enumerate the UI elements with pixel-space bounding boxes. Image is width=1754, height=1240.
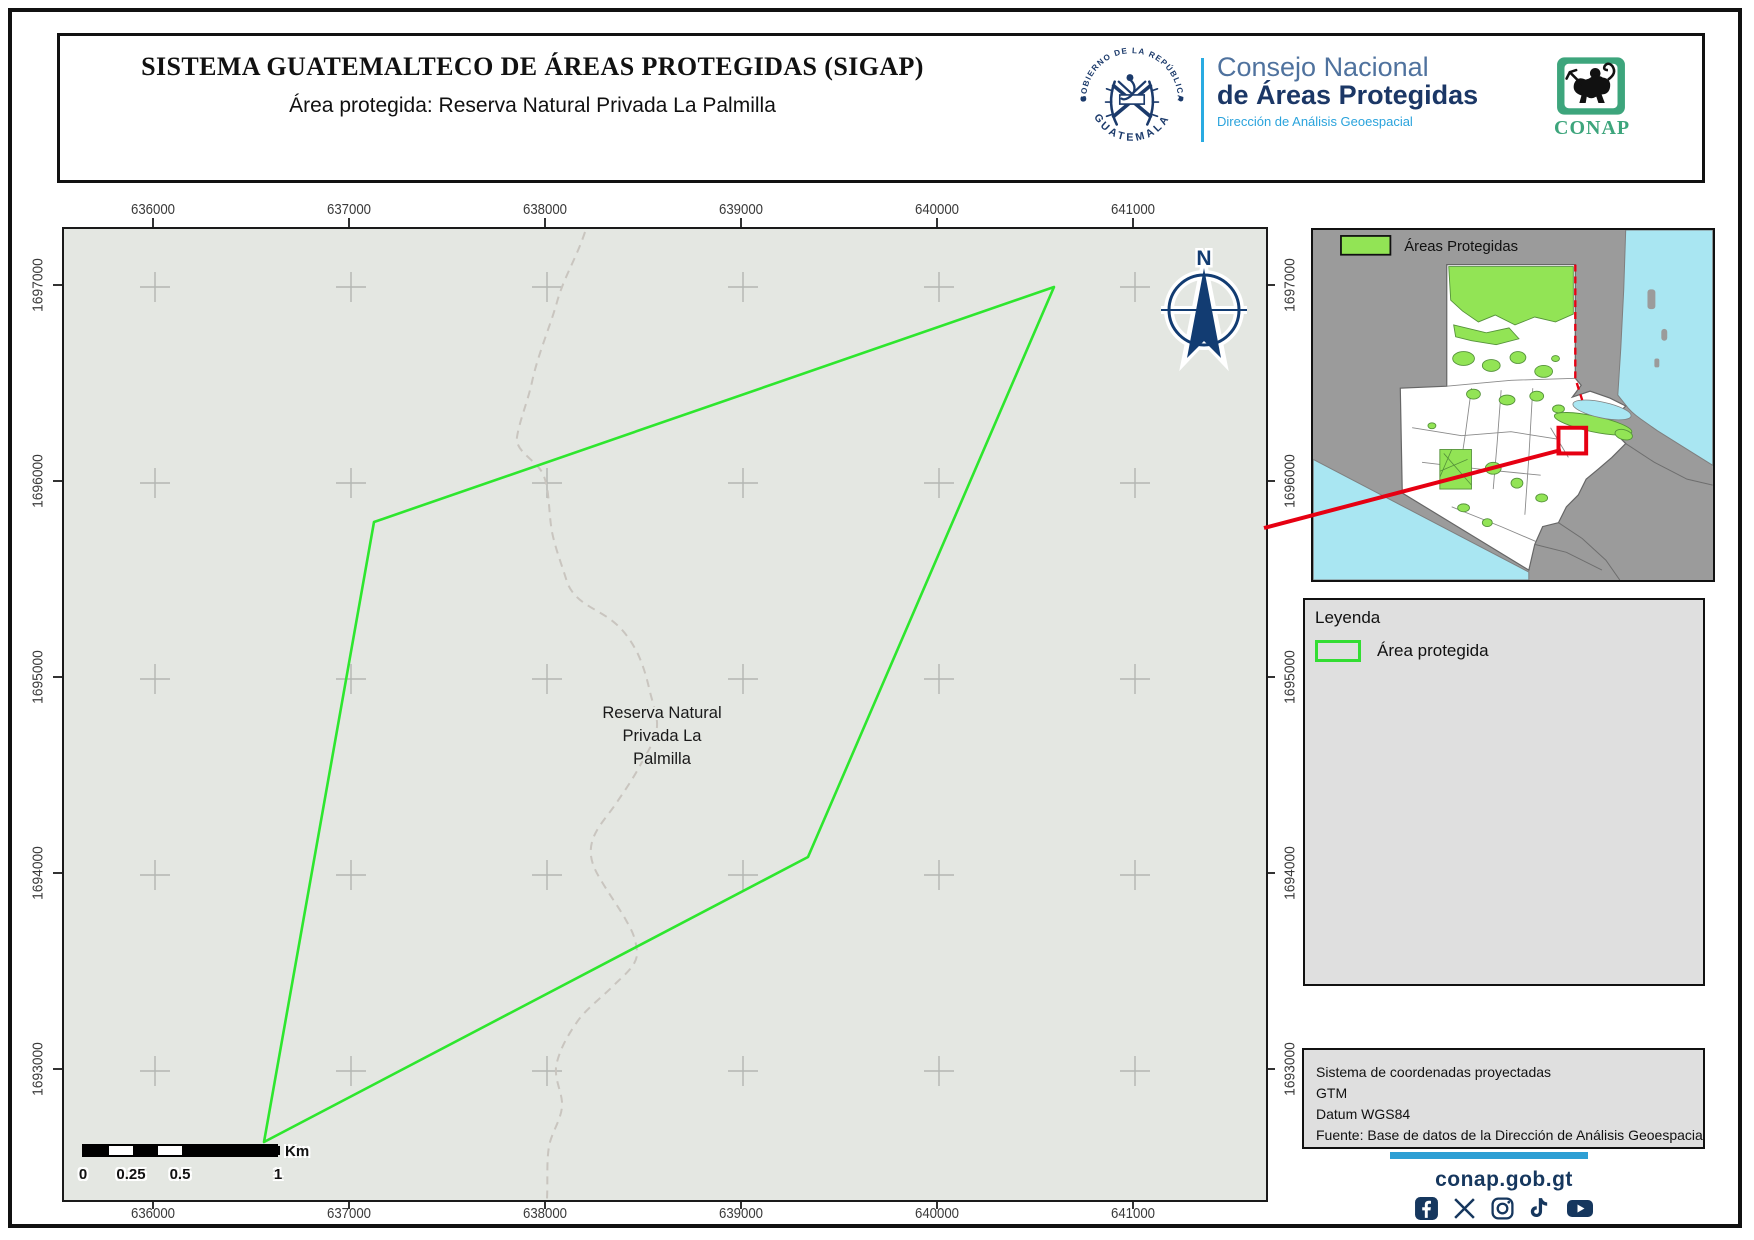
info-line-1: Sistema de coordenadas proyectadas [1316,1062,1691,1083]
instagram-icon[interactable] [1490,1196,1515,1221]
inset-legend-swatch [1341,236,1390,255]
legend-item-label: Área protegida [1377,641,1489,661]
area-label-line1: Reserva Natural [602,704,721,722]
x-axis-label-top-2: 638000 [523,201,567,218]
quetzal-emblem-icon [1114,74,1151,116]
footer-accent-bar [1390,1152,1588,1159]
scale-unit-label: Km [285,1143,309,1160]
scale-label-0: 0 [79,1166,87,1183]
x-icon[interactable] [1452,1196,1477,1221]
y-axis-label-left-4: 1693000 [30,1042,47,1096]
area-label-line3: Palmilla [633,750,692,768]
tick [152,218,154,227]
scale-bar-segment [182,1146,280,1155]
conap-logo [1556,56,1626,116]
scale-label-2: 0.5 [170,1166,191,1183]
legend-item: Área protegida [1315,640,1693,662]
legend-swatch-protected-area [1315,640,1361,662]
north-label: N [1196,247,1211,270]
tick [53,676,62,678]
council-name-line1: Consejo Nacional [1217,53,1547,81]
y-axis-label-left-3: 1694000 [30,846,47,900]
tick [1132,218,1134,227]
legend-title: Leyenda [1315,608,1693,628]
logo-divider [1201,58,1204,142]
main-map: Reserva Natural Privada La Palmilla N [62,227,1268,1202]
council-name-line3: Dirección de Análisis Geoespacial [1217,115,1547,129]
north-arrow-icon: N [1161,247,1247,360]
y-axis-label-right-0: 1697000 [1282,258,1299,312]
grid-crosses [140,272,1150,1086]
legend-box: Leyenda Área protegida [1303,598,1705,986]
emblem-dot-left [1081,97,1086,102]
svg-text:GUATEMALA: GUATEMALA [1091,112,1173,144]
youtube-icon[interactable] [1566,1196,1594,1221]
tick [53,1068,62,1070]
x-axis-label-top-1: 637000 [327,201,371,218]
scale-bar [82,1144,278,1157]
y-axis-label-right-2: 1695000 [1282,650,1299,704]
x-axis-label-top-4: 640000 [915,201,959,218]
y-axis-label-right-4: 1693000 [1282,1042,1299,1096]
map-layout-page: SISTEMA GUATEMALTECO DE ÁREAS PROTEGIDAS… [0,0,1754,1240]
inset-map-canvas: Áreas Protegidas [1313,230,1713,580]
coordinate-info-box: Sistema de coordenadas proyectadas GTM D… [1302,1048,1705,1149]
tick [53,480,62,482]
emblem-dot-right [1178,97,1183,102]
scale-bar-segment [133,1146,158,1155]
scale-bar-segment [84,1146,109,1155]
emblem-bottom-text: GUATEMALA [1091,112,1173,144]
tick [936,218,938,227]
y-axis-label-right-1: 1696000 [1282,454,1299,508]
info-line-4: Fuente: Base de datos de la Dirección de… [1316,1125,1691,1146]
government-emblem: GOBIERNO DE LA REPÚBLICA GUATEMALA [1076,43,1188,155]
y-axis-label-right-3: 1694000 [1282,846,1299,900]
page-subtitle: Área protegida: Reserva Natural Privada … [60,94,1005,118]
inset-map: Áreas Protegidas [1311,228,1715,582]
tick [348,218,350,227]
y-axis-label-left-0: 1697000 [30,258,47,312]
facebook-icon[interactable] [1414,1196,1439,1221]
council-name-line2: de Áreas Protegidas [1217,81,1547,109]
area-label-line2: Privada La [623,727,703,745]
info-line-3: Datum WGS84 [1316,1104,1691,1125]
inset-legend-label: Áreas Protegidas [1404,238,1518,255]
main-map-canvas: Reserva Natural Privada La Palmilla N [64,229,1266,1200]
x-axis-label-top-0: 636000 [131,201,175,218]
info-line-2: GTM [1316,1083,1691,1104]
conap-wordmark: CONAP [1554,117,1626,140]
y-axis-label-left-2: 1695000 [30,650,47,704]
scale-label-1: 0.25 [116,1166,145,1183]
social-icons-row [1303,1196,1705,1221]
tick [544,218,546,227]
x-axis-label-top-5: 641000 [1111,201,1155,218]
tiktok-icon[interactable] [1528,1196,1553,1221]
tick [740,218,742,227]
title-box: SISTEMA GUATEMALTECO DE ÁREAS PROTEGIDAS… [57,33,1705,183]
scale-label-3: 1 [274,1166,282,1183]
x-axis-label-top-3: 639000 [719,201,763,218]
tick [53,284,62,286]
tick [53,872,62,874]
page-title: SISTEMA GUATEMALTECO DE ÁREAS PROTEGIDAS… [60,52,1005,82]
website-link[interactable]: conap.gob.gt [1303,1168,1705,1192]
y-axis-label-left-1: 1696000 [30,454,47,508]
